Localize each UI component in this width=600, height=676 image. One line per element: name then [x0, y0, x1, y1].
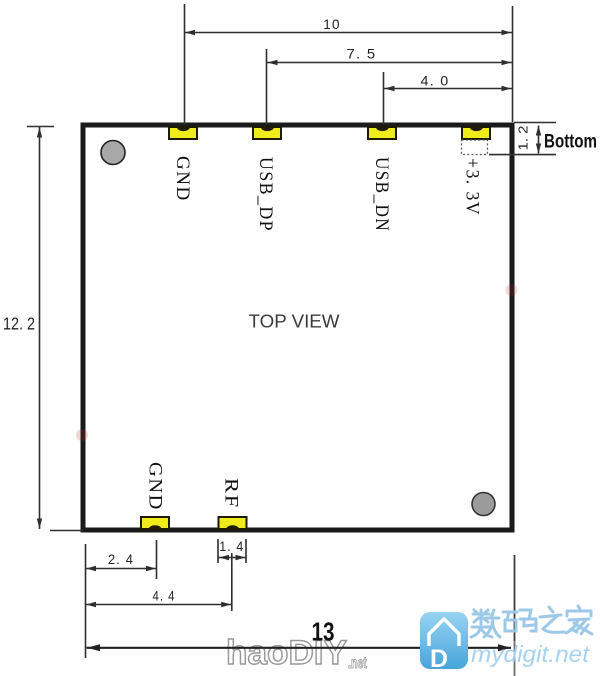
- svg-text:4. 0: 4. 0: [421, 74, 450, 89]
- svg-text:TOP VIEW: TOP VIEW: [249, 312, 340, 332]
- svg-text:1. 2: 1. 2: [517, 125, 531, 150]
- svg-text:USB_DN: USB_DN: [371, 157, 392, 232]
- svg-text:2. 4: 2. 4: [108, 552, 134, 567]
- svg-text:Bottom: Bottom: [544, 132, 597, 153]
- svg-text:4. 4: 4. 4: [153, 589, 176, 604]
- svg-text:+3. 3V: +3. 3V: [461, 158, 482, 216]
- svg-text:GND: GND: [144, 462, 165, 511]
- svg-text:D: D: [430, 645, 448, 673]
- svg-text:USB_DP: USB_DP: [255, 157, 276, 232]
- svg-text:GND: GND: [172, 156, 193, 202]
- svg-text:1. 4: 1. 4: [219, 539, 244, 554]
- svg-text:RF: RF: [221, 478, 242, 509]
- svg-text:10: 10: [323, 17, 340, 32]
- svg-text:12. 2: 12. 2: [3, 314, 35, 334]
- svg-text:.net: .net: [348, 655, 367, 672]
- svg-text:mydigit.net: mydigit.net: [471, 641, 591, 667]
- svg-text:7. 5: 7. 5: [347, 47, 377, 62]
- svg-text:13: 13: [312, 617, 335, 647]
